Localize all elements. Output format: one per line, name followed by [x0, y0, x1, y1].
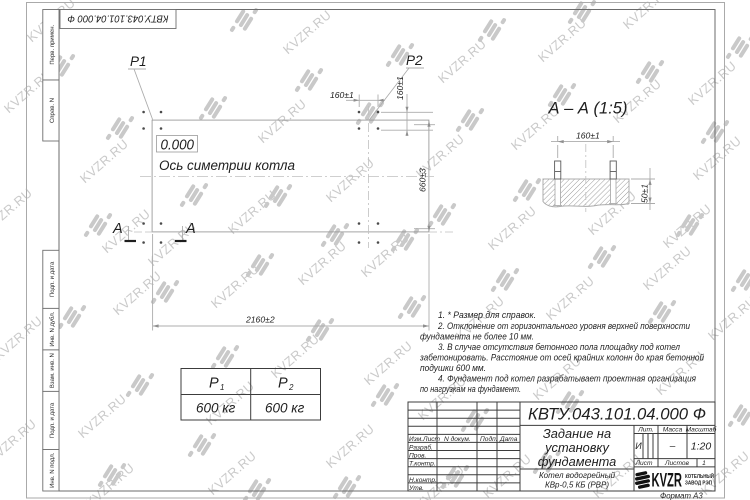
svg-text:Листов: Листов [664, 460, 690, 467]
svg-text:–: – [669, 441, 676, 452]
svg-text:Пров.: Пров. [409, 453, 427, 460]
svg-text:Перв. примен.: Перв. примен. [49, 24, 56, 64]
svg-text:Инв. N подл.: Инв. N подл. [49, 452, 56, 488]
svg-text:Масштаб: Масштаб [686, 426, 717, 434]
svg-text:И: И [635, 441, 642, 451]
svg-text:50±1: 50±1 [640, 184, 650, 203]
svg-text:4. Фундамент под котел разраб: 4. Фундамент под котел разрабатывает про… [438, 374, 696, 384]
svg-text:фундамента: фундамента [538, 454, 617, 469]
svg-text:ЗАВОД РЭП: ЗАВОД РЭП [685, 481, 712, 487]
svg-text:установку: установку [544, 440, 610, 455]
svg-text:Инв. N дубл.: Инв. N дубл. [49, 311, 56, 346]
svg-text:Подп. и дата: Подп. и дата [49, 402, 56, 438]
svg-text:P: P [278, 376, 288, 392]
svg-text:1: 1 [702, 460, 706, 467]
svg-text:1:20: 1:20 [691, 441, 712, 453]
svg-text:КВТУ.043.101.04.000 Ф: КВТУ.043.101.04.000 Ф [528, 406, 706, 424]
svg-text:2160±2: 2160±2 [245, 315, 275, 325]
svg-text:Подп.: Подп. [480, 435, 498, 443]
svg-text:600 кг: 600 кг [265, 401, 305, 416]
svg-text:160±1: 160±1 [576, 131, 600, 141]
svg-text:подушки 600 мм.: подушки 600 мм. [420, 363, 486, 373]
svg-text:N докум.: N докум. [444, 435, 471, 443]
svg-text:Изм.Лист: Изм.Лист [409, 436, 441, 443]
svg-text:по нагрузкам на фундамент.: по нагрузкам на фундамент. [420, 384, 521, 394]
svg-text:P2: P2 [406, 53, 423, 68]
svg-text:фундамента не более 10 мм.: фундамента не более 10 мм. [420, 331, 534, 341]
svg-text:Ось симетрии котла: Ось симетрии котла [159, 158, 295, 173]
svg-text:А – А (1:5): А – А (1:5) [547, 100, 627, 118]
svg-text:0.000: 0.000 [161, 137, 195, 154]
svg-text:КОТЕЛЬНЫЙ: КОТЕЛЬНЫЙ [685, 472, 714, 480]
svg-text:160±1: 160±1 [395, 76, 405, 100]
svg-text:2. Отклонение от горизонтальн: 2. Отклонение от горизонтального уровня … [437, 321, 690, 331]
svg-text:Формат А3: Формат А3 [660, 492, 703, 500]
svg-text:2: 2 [288, 383, 294, 392]
svg-text:KVZR: KVZR [652, 471, 683, 492]
svg-text:Утв.: Утв. [408, 485, 424, 492]
svg-text:Взам. инв. N: Взам. инв. N [49, 353, 56, 388]
svg-text:160±1: 160±1 [330, 90, 354, 100]
svg-text:Дата: Дата [499, 436, 518, 443]
svg-text:Задание на: Задание на [543, 426, 611, 441]
svg-text:P1: P1 [130, 54, 147, 69]
svg-text:забетонировать. Расстояние от: забетонировать. Расстояние от осей крайн… [419, 352, 704, 362]
svg-text:Лит.: Лит. [637, 427, 654, 434]
svg-text:600 кг: 600 кг [196, 401, 236, 416]
svg-text:КВТУ.043.101.04.000 Ф: КВТУ.043.101.04.000 Ф [67, 13, 168, 24]
svg-text:Котел водогрейный: Котел водогрейный [539, 471, 616, 480]
svg-text:Разраб.: Разраб. [409, 444, 433, 452]
svg-text:1: 1 [220, 383, 224, 392]
svg-text:А: А [112, 221, 123, 237]
svg-text:Т.контр.: Т.контр. [409, 461, 436, 468]
svg-text:Подп. и дата: Подп. и дата [49, 261, 56, 297]
svg-text:Масса: Масса [663, 427, 683, 434]
svg-text:КВр-0,5 КБ (РВР): КВр-0,5 КБ (РВР) [545, 481, 609, 490]
svg-text:660±3: 660±3 [418, 168, 428, 192]
svg-text:3. В случае отсутствия бетонн: 3. В случае отсутствия бетонного пола пл… [438, 342, 681, 352]
svg-text:Н.контр.: Н.контр. [409, 477, 437, 484]
svg-text:P: P [209, 376, 219, 392]
svg-text:А: А [185, 221, 196, 237]
svg-text:1. * Размер для справок.: 1. * Размер для справок. [438, 310, 536, 320]
svg-text:Лист: Лист [635, 460, 653, 467]
svg-text:Справ. N: Справ. N [49, 98, 56, 123]
